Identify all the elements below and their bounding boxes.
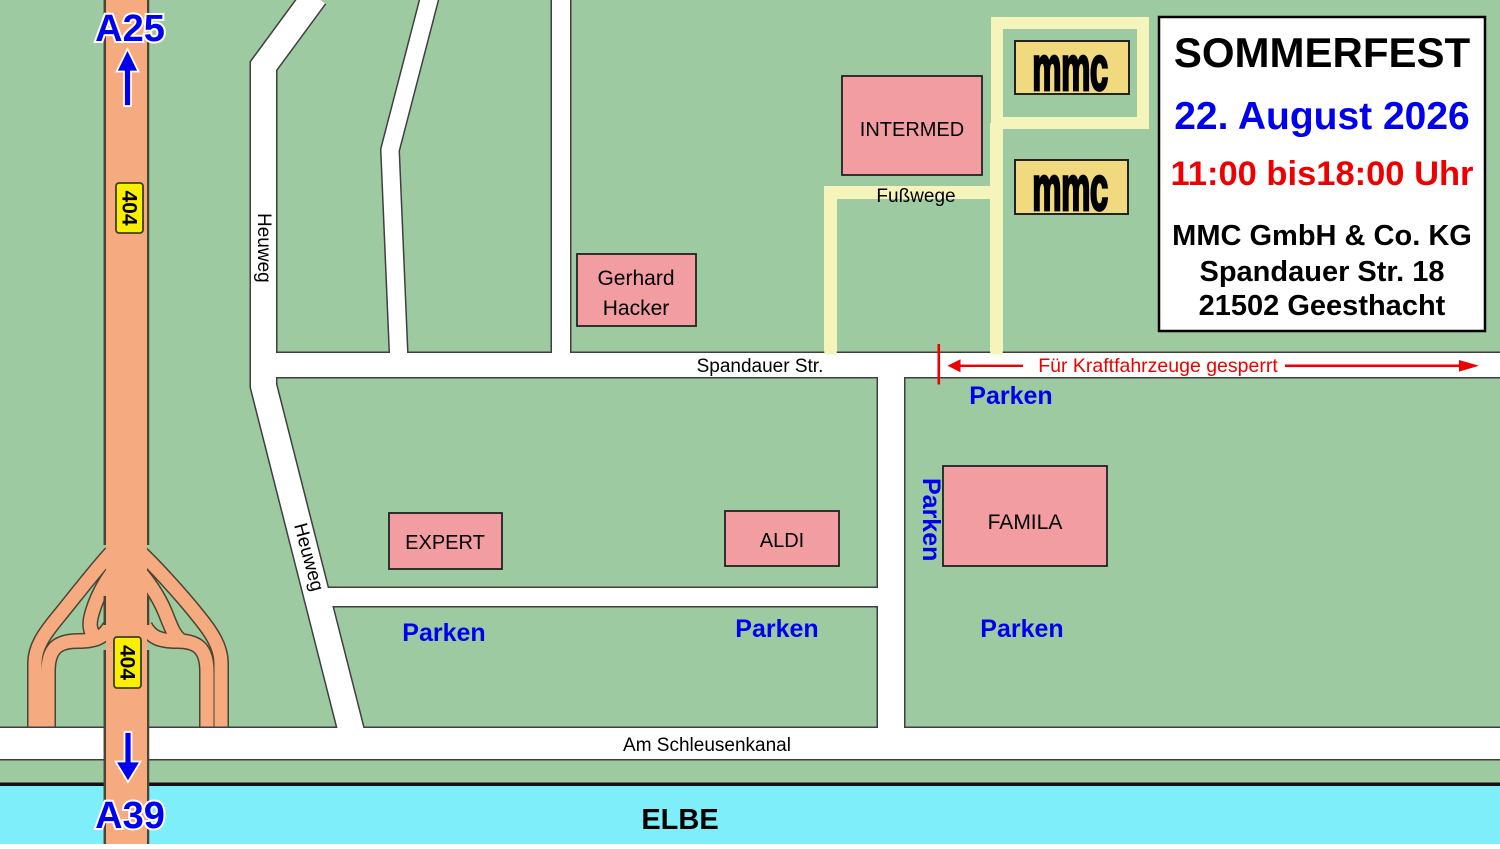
svg-text:Gerhard: Gerhard [597, 267, 674, 290]
svg-text:Parken: Parken [980, 615, 1063, 643]
svg-text:A39: A39 [95, 795, 165, 837]
svg-text:Am Schleusenkanal: Am Schleusenkanal [623, 735, 791, 756]
svg-text:Hacker: Hacker [603, 297, 670, 320]
svg-text:Parken: Parken [735, 615, 818, 643]
svg-text:Spandauer Str.: Spandauer Str. [697, 356, 824, 377]
svg-text:mmc: mmc [1032, 34, 1108, 104]
svg-text:ELBE: ELBE [641, 804, 718, 836]
svg-text:FAMILA: FAMILA [988, 511, 1063, 534]
svg-text:21502 Geesthacht: 21502 Geesthacht [1199, 290, 1446, 322]
svg-text:Für Kraftfahrzeuge gesperrt: Für Kraftfahrzeuge gesperrt [1038, 355, 1278, 377]
svg-text:MMC GmbH & Co. KG: MMC GmbH & Co. KG [1172, 220, 1472, 252]
svg-text:INTERMED: INTERMED [860, 119, 964, 141]
svg-text:A25: A25 [95, 8, 165, 50]
svg-text:Parken: Parken [402, 619, 485, 647]
svg-text:404: 404 [116, 645, 139, 680]
svg-text:ALDI: ALDI [760, 530, 804, 552]
svg-text:Fußwege: Fußwege [876, 186, 955, 207]
svg-text:404: 404 [118, 190, 141, 225]
svg-text:Heuweg: Heuweg [253, 213, 274, 283]
svg-text:SOMMERFEST: SOMMERFEST [1174, 29, 1471, 76]
svg-text:22. August 2026: 22. August 2026 [1174, 95, 1470, 138]
svg-text:Spandauer Str. 18: Spandauer Str. 18 [1200, 256, 1445, 288]
svg-text:Parken: Parken [917, 478, 945, 561]
svg-text:11:00 bis18:00 Uhr: 11:00 bis18:00 Uhr [1170, 155, 1473, 193]
svg-text:mmc: mmc [1032, 154, 1108, 224]
svg-text:Parken: Parken [969, 382, 1052, 410]
svg-text:EXPERT: EXPERT [405, 532, 485, 554]
